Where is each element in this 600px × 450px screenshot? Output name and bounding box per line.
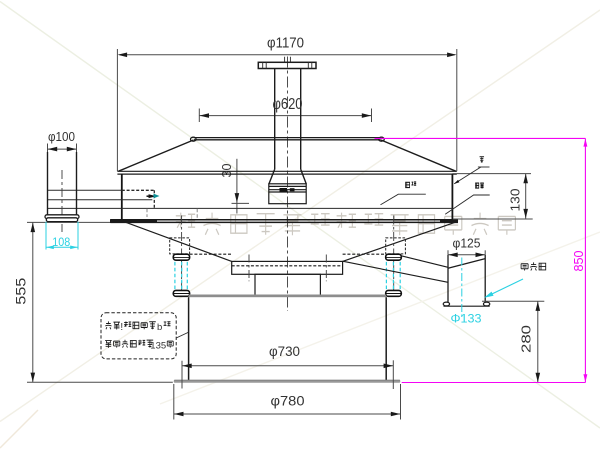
svg-text:φ780: φ780 [271, 393, 305, 409]
svg-text:280: 280 [519, 325, 534, 353]
svg-text:φ125: φ125 [453, 237, 481, 251]
svg-text:φ100: φ100 [48, 130, 75, 144]
svg-text:30: 30 [219, 164, 234, 178]
svg-text:555: 555 [14, 278, 29, 305]
svg-text:b: b [157, 322, 162, 333]
svg-text:φ730: φ730 [269, 344, 300, 359]
svg-text:130: 130 [508, 189, 523, 212]
svg-text:φ1170: φ1170 [267, 36, 304, 52]
svg-text:850: 850 [571, 251, 586, 272]
svg-text:Φ133: Φ133 [451, 312, 482, 326]
svg-text:φ620: φ620 [273, 96, 303, 113]
svg-text:135: 135 [150, 341, 166, 352]
svg-text:108: 108 [52, 237, 70, 249]
svg-text:!: ! [120, 322, 123, 333]
